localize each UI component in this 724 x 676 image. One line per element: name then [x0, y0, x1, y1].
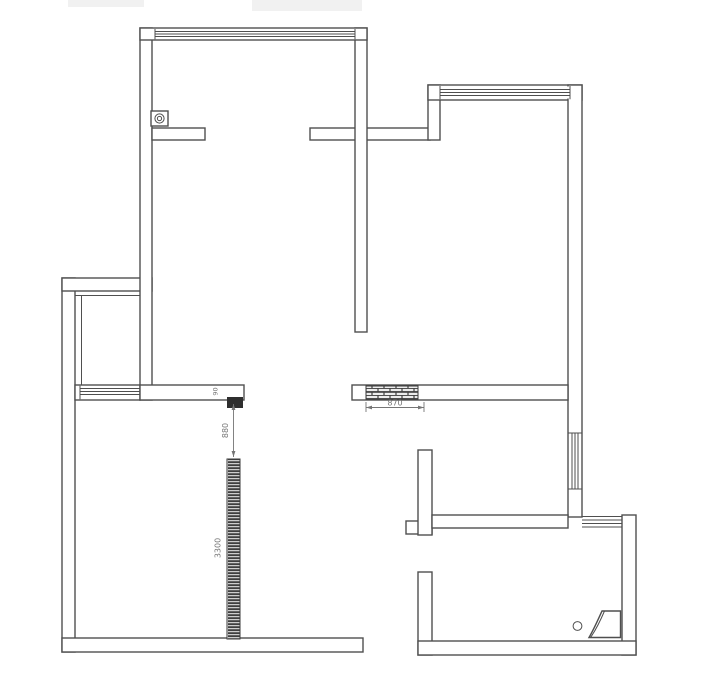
smudge-left [68, 0, 144, 7]
window-lower-right [582, 517, 622, 528]
dim-880-label: 880 [221, 423, 230, 438]
dim-870-label: 870 [387, 399, 402, 408]
window-top-left [155, 29, 355, 39]
floor-plan-canvas: 870 880 3300 90 [0, 0, 724, 676]
windows [80, 29, 622, 527]
dim-90-label: 90 [212, 387, 220, 395]
wall-midright-bottom [432, 515, 568, 528]
wall-lowright-outer [622, 515, 636, 655]
brick-infill-hatch [366, 386, 418, 399]
wall-midright-left [418, 450, 432, 535]
column-symbol [151, 111, 168, 126]
smudge-right [252, 0, 362, 11]
partition-hatch-strip [227, 459, 240, 639]
wall-bottom-outer [62, 638, 363, 652]
wall-left-outer [62, 278, 75, 652]
window-right-wall [568, 433, 582, 489]
top-artifact-smudges [68, 0, 362, 11]
wall-upperleft-left [140, 28, 152, 400]
dimension-880: 880 [221, 404, 235, 457]
floor-plan-page: 870 880 3300 90 [0, 0, 724, 676]
wall-lowright-bottom [418, 641, 636, 655]
wall-end-block [227, 397, 243, 408]
wall-cross-patch [356, 129, 366, 139]
window-top-right [440, 86, 570, 99]
dim-3300-label: 3300 [214, 538, 223, 558]
corner-fixture-symbol [573, 611, 620, 638]
dimension-90: 90 [212, 387, 220, 395]
drain-circle-icon [573, 622, 582, 631]
dimension-3300: 3300 [214, 538, 223, 558]
walls [62, 28, 636, 655]
column-box [151, 111, 168, 126]
wall-left-connector [62, 278, 152, 291]
wall-shared-vertical [355, 28, 367, 332]
wall-cross-stub [310, 128, 430, 140]
wall-mid-bay [75, 385, 140, 400]
wall-column-stub [152, 128, 205, 140]
